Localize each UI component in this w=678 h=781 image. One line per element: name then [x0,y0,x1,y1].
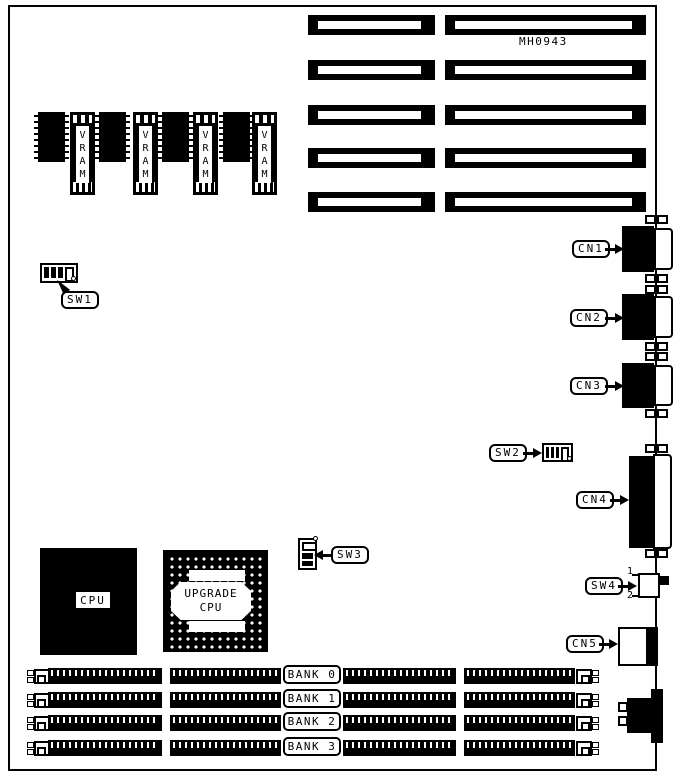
vram-chip [162,112,189,162]
simm-socket [48,692,162,708]
mounting-tab [657,285,668,294]
keyboard-connector [651,733,663,743]
mounting-tab [657,444,668,453]
socket-slot [189,570,245,581]
simm-clip [581,747,590,756]
simm-clip [592,742,599,748]
connector-pin [618,702,628,712]
simm-socket [343,692,456,708]
motherboard-diagram: MH0943 VRAM VRAM VRAM VRAM SW1 CN1 CN2 [0,0,678,781]
simm-clip [37,699,46,708]
bank2-label: BANK 2 [283,712,341,731]
simm-socket [170,715,281,731]
cn4-dsub-face [653,454,672,549]
switch-dot [313,536,318,541]
simm-socket [170,692,281,708]
mounting-tab [645,342,656,351]
pointer-arrow-icon [610,495,629,505]
simm-socket [464,715,575,731]
simm-clip [592,724,599,730]
simm-clip [27,724,34,730]
simm-clip [37,747,46,756]
switch-dot [71,276,76,281]
simm-socket [170,668,281,684]
keyboard-connector [627,698,663,733]
cn2-dsub-face [654,296,673,338]
simm-clip [27,677,34,683]
vram-module: VRAM [70,112,95,195]
simm-socket [343,668,456,684]
pointer-arrow-icon [618,581,637,591]
mounting-tab [657,342,668,351]
simm-clip [592,677,599,683]
mounting-tab [645,409,656,418]
simm-socket [48,668,162,684]
pointer-arrow-icon [605,244,624,254]
simm-clip [581,699,590,708]
sw4-actuator [660,576,669,585]
sw3-label: SW3 [331,546,369,564]
mounting-tab [657,549,668,558]
mounting-tab [645,285,656,294]
pin2-lead-line [632,595,640,597]
mounting-tab [645,274,656,283]
cn5-connector-key [646,627,658,666]
simm-clip [581,722,590,731]
simm-clip [27,670,34,676]
vram-module: VRAM [252,112,277,195]
cn3-label: CN3 [570,377,608,395]
sw1-label: SW1 [61,291,99,309]
sw4-switch [638,573,660,598]
simm-socket [464,740,575,756]
vram-module: VRAM [133,112,158,195]
simm-socket [48,715,162,731]
pointer-arrow-icon [599,639,618,649]
simm-socket [343,715,456,731]
vram-module-label: VRAM [142,129,150,181]
simm-clip [592,749,599,755]
vram-chip [99,112,126,162]
mounting-tab [645,549,656,558]
vram-chip [223,112,250,162]
vram-module-label: VRAM [79,129,87,181]
pointer-arrow-icon [605,313,624,323]
simm-clip [27,701,34,707]
mounting-tab [645,444,656,453]
simm-clip [37,675,46,684]
vram-module: VRAM [193,112,218,195]
expansion-slot [445,15,646,35]
cn4-connector [629,456,654,548]
simm-socket [170,740,281,756]
bank1-label: BANK 1 [283,689,341,708]
simm-clip [592,701,599,707]
mounting-tab [657,215,668,224]
cn1-connector [622,226,654,272]
sw2-label: SW2 [489,444,527,462]
simm-clip [27,717,34,723]
expansion-slot [445,148,646,168]
mounting-tab [645,215,656,224]
simm-clip [581,675,590,684]
simm-clip [27,742,34,748]
simm-socket [48,740,162,756]
simm-clip [27,694,34,700]
mounting-tab [657,352,668,361]
cn4-label: CN4 [576,491,614,509]
mounting-tab [657,274,668,283]
expansion-slot [308,148,435,168]
expansion-slot [308,105,435,125]
part-number: MH0943 [519,35,568,48]
pointer-arrow-icon [523,448,542,458]
vram-module-label: VRAM [202,129,210,181]
expansion-slot [308,60,435,80]
expansion-slot [308,15,435,35]
simm-socket [464,692,575,708]
expansion-slot [308,192,435,212]
bank0-label: BANK 0 [283,665,341,684]
expansion-slot [445,60,646,80]
cn3-connector [622,363,654,408]
cpu-label: CPU [76,592,110,608]
simm-socket [343,740,456,756]
simm-clip [592,717,599,723]
simm-socket [464,668,575,684]
simm-clip [27,749,34,755]
mounting-tab [657,409,668,418]
upgrade-cpu-label: UPGRADE CPU [171,582,251,620]
pointer-arrow-icon [605,381,624,391]
cn2-label: CN2 [570,309,608,327]
cn3-dsub-face [654,365,673,406]
bank3-label: BANK 3 [283,737,341,756]
cn2-connector [622,294,654,340]
vram-module-label: VRAM [261,129,269,181]
expansion-slot [445,192,646,212]
pin1-lead-line [632,574,640,576]
mounting-tab [645,352,656,361]
simm-clip [37,722,46,731]
socket-slot [189,621,245,632]
cn1-dsub-face [654,228,673,270]
connector-pin [618,716,628,726]
simm-clip [592,694,599,700]
simm-clip [592,670,599,676]
expansion-slot [445,105,646,125]
vram-chip [38,112,65,162]
switch-dot [567,456,572,461]
